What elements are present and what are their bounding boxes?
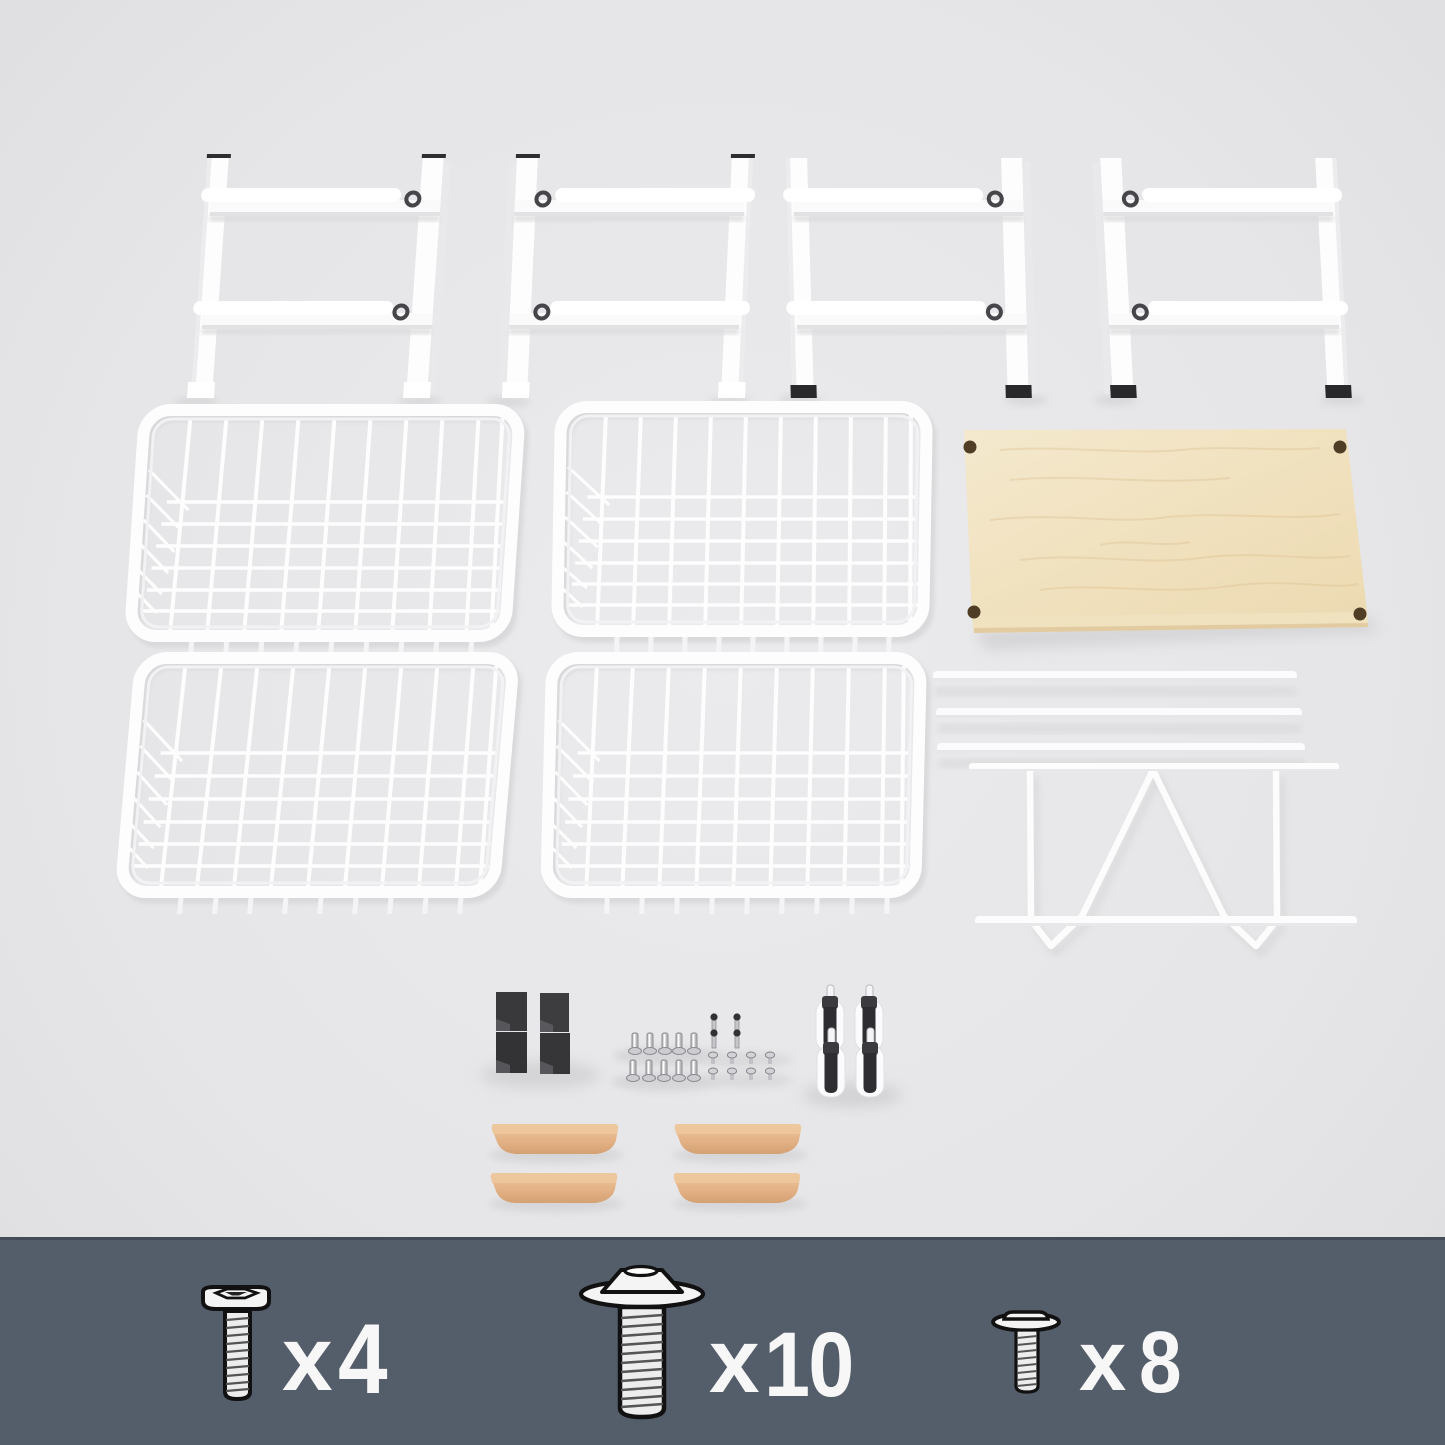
svg-text:10: 10 xyxy=(764,1313,853,1416)
svg-text:x: x xyxy=(709,1311,760,1412)
svg-text:4: 4 xyxy=(338,1304,388,1414)
svg-text:8: 8 xyxy=(1139,1314,1182,1411)
svg-text:x: x xyxy=(282,1309,333,1410)
svg-text:x: x xyxy=(1079,1314,1126,1409)
